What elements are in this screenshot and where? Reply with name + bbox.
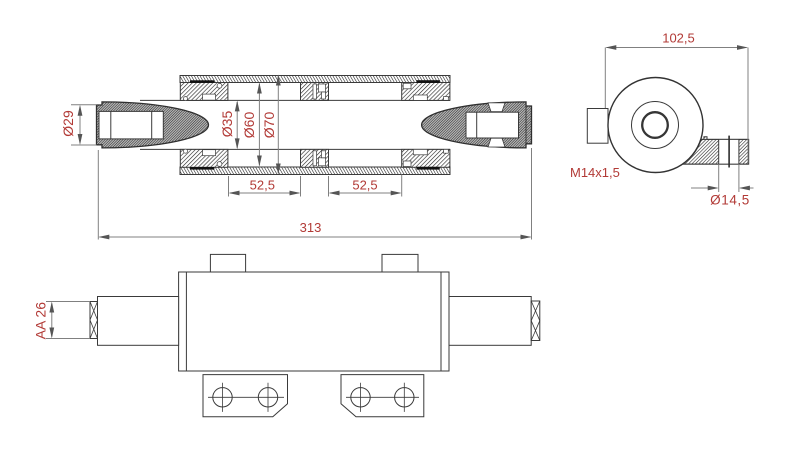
svg-text:52,5: 52,5 bbox=[352, 178, 377, 193]
svg-text:52,5: 52,5 bbox=[250, 178, 275, 193]
svg-text:AA 26: AA 26 bbox=[33, 302, 49, 340]
svg-text:Ø60: Ø60 bbox=[241, 112, 257, 139]
svg-text:M14x1,5: M14x1,5 bbox=[570, 165, 620, 180]
svg-text:313: 313 bbox=[300, 220, 322, 235]
svg-text:102,5: 102,5 bbox=[662, 31, 695, 46]
svg-text:Ø29: Ø29 bbox=[60, 110, 76, 137]
svg-text:Ø70: Ø70 bbox=[261, 112, 277, 139]
svg-text:Ø35: Ø35 bbox=[219, 111, 235, 138]
svg-text:Ø14,5: Ø14,5 bbox=[710, 193, 750, 208]
